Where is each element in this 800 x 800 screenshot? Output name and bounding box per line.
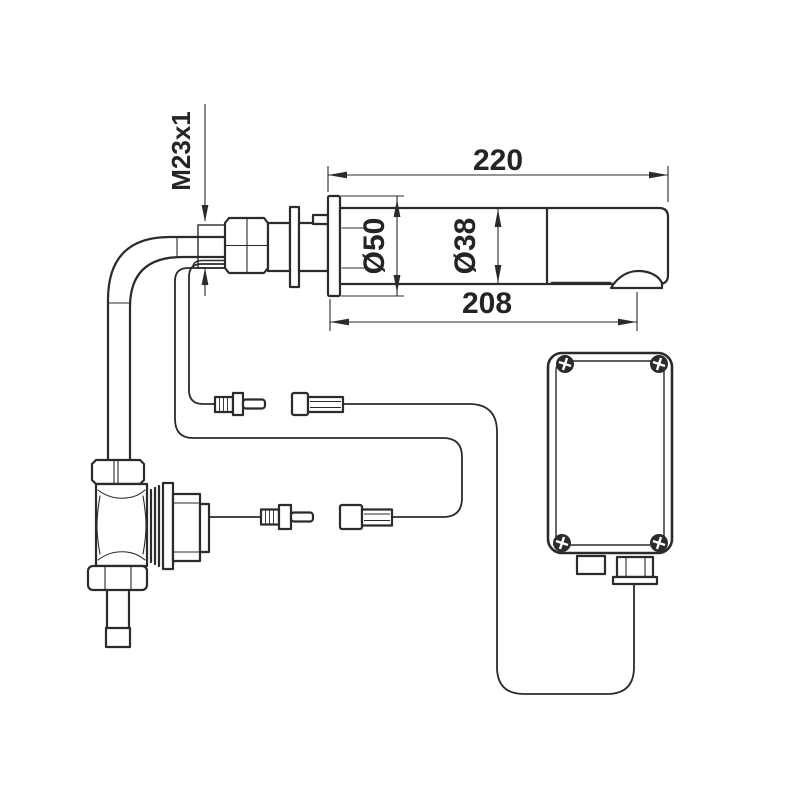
spout-shank-right	[299, 223, 328, 271]
female-connector-barrel	[308, 397, 343, 412]
spout-shank-left	[268, 223, 290, 271]
threaded-pipe-end	[198, 225, 226, 268]
outlet-pipe-walls	[107, 590, 129, 628]
dim-overall-length: 220	[328, 144, 668, 202]
solenoid-connector-pair	[261, 505, 392, 529]
mounting-tab	[577, 556, 605, 574]
cable-gland-nut	[617, 557, 653, 577]
cable-gland	[613, 557, 657, 584]
sensor-connector-pair	[215, 393, 343, 415]
solenoid-tip	[200, 504, 209, 552]
male-connector-barrel	[261, 510, 279, 525]
dim-label-overall-length: 220	[473, 144, 523, 177]
technical-drawing-page: M23x1 220 Ø50 Ø38 208	[0, 0, 800, 800]
dim-label-thread: M23x1	[166, 111, 196, 191]
wall-flange	[328, 196, 340, 296]
outlet-pipe-end	[106, 628, 130, 647]
dim-label-projection-length: 208	[462, 287, 512, 320]
angle-valve-assembly	[88, 460, 209, 647]
dim-label-spout-diameter: Ø38	[449, 218, 482, 275]
male-connector-pin	[291, 513, 313, 522]
loop-cable-to-solenoid-connector	[175, 268, 462, 517]
female-connector-cap	[340, 505, 362, 529]
screw-top-right	[650, 355, 668, 373]
male-connector-barrel	[215, 397, 233, 412]
screw-bottom-right	[650, 534, 668, 552]
cable-gland-rim	[613, 577, 657, 584]
control-box	[548, 353, 672, 584]
wall-spout	[225, 196, 668, 296]
dim-projection-length: 208	[330, 287, 637, 331]
solenoid-flange	[163, 483, 173, 569]
sensor-spout-installation-diagram: M23x1 220 Ø50 Ø38 208	[0, 0, 800, 800]
escutcheon-plate	[290, 207, 299, 287]
screw-bottom-left	[553, 534, 571, 552]
female-connector-barrel	[362, 510, 392, 526]
solenoid-washer-rings	[151, 486, 159, 566]
solenoid-coil-body	[173, 494, 200, 561]
dim-label-flange-diameter: Ø50	[358, 218, 391, 275]
male-connector-pin	[243, 400, 265, 409]
screw-top-left	[556, 355, 574, 373]
locating-pin	[313, 215, 328, 224]
valve-body	[96, 484, 147, 566]
lower-hex-nut	[88, 566, 147, 590]
female-connector-cap	[292, 393, 308, 415]
male-connector-collar	[279, 505, 291, 529]
control-box-housing	[548, 353, 672, 553]
pipe-outer-edge	[108, 237, 226, 461]
male-connector-collar	[233, 393, 243, 415]
